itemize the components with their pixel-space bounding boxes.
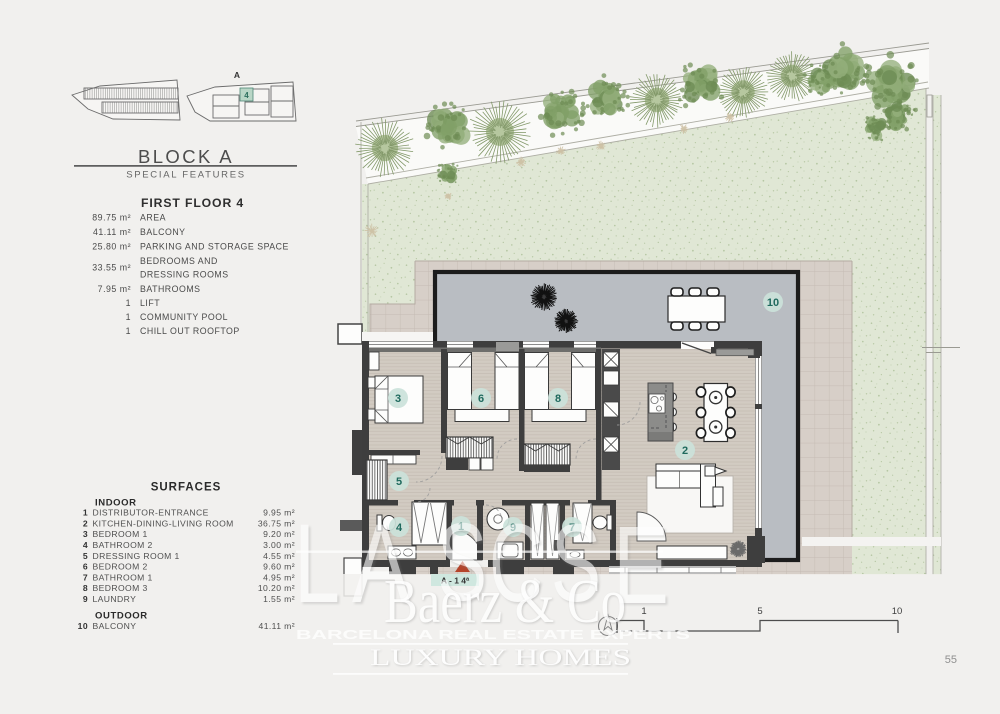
svg-text:BALCONY: BALCONY [93,621,137,631]
svg-text:BARCELONA REAL ESTATE EXPERTS: BARCELONA REAL ESTATE EXPERTS [296,627,691,642]
svg-text:BEDROOM 3: BEDROOM 3 [93,583,148,593]
svg-text:7: 7 [83,572,88,582]
svg-text:4: 4 [83,540,88,550]
svg-text:7.95 m²: 7.95 m² [98,284,131,294]
svg-text:2: 2 [682,445,688,457]
svg-text:CHILL OUT ROOFTOP: CHILL OUT ROOFTOP [140,326,240,336]
svg-text:1.55 m²: 1.55 m² [263,594,295,604]
svg-text:DRESSING ROOMS: DRESSING ROOMS [140,270,229,280]
svg-text:8: 8 [555,393,561,405]
svg-text:41.11 m²: 41.11 m² [93,227,131,237]
svg-text:LUXURY HOMES: LUXURY HOMES [370,645,631,670]
svg-text:8: 8 [83,583,88,593]
svg-text:1: 1 [83,508,88,518]
svg-text:KITCHEN-DINING-LIVING ROOM: KITCHEN-DINING-LIVING ROOM [93,518,234,528]
svg-text:BLOCK A: BLOCK A [138,146,234,167]
svg-text:55: 55 [945,654,957,666]
svg-text:DRESSING ROOM 1: DRESSING ROOM 1 [93,551,180,561]
svg-text:BEDROOMS AND: BEDROOMS AND [140,256,218,266]
svg-text:SURFACES: SURFACES [151,482,222,494]
svg-text:PARKING AND STORAGE SPACE: PARKING AND STORAGE SPACE [140,242,289,252]
svg-text:89.75 m²: 89.75 m² [92,213,131,223]
svg-text:1: 1 [126,326,131,336]
svg-text:4: 4 [244,91,249,100]
svg-text:3.00 m²: 3.00 m² [263,540,295,550]
svg-text:33.55 m²: 33.55 m² [92,263,131,273]
svg-text:25.80 m²: 25.80 m² [92,242,131,252]
svg-text:BEDROOM 2: BEDROOM 2 [93,562,148,572]
svg-text:DISTRIBUTOR-ENTRANCE: DISTRIBUTOR-ENTRANCE [93,508,209,518]
svg-text:BALCONY: BALCONY [140,227,186,237]
svg-text:36.75 m²: 36.75 m² [258,518,295,528]
svg-text:6: 6 [83,562,88,572]
svg-text:Baerz & Co: Baerz & Co [384,568,626,636]
svg-text:L: L [294,501,340,626]
svg-text:41.11 m²: 41.11 m² [259,621,295,631]
svg-text:5: 5 [396,476,402,488]
svg-text:5: 5 [83,551,88,561]
svg-text:10: 10 [767,297,779,309]
svg-text:LAUNDRY: LAUNDRY [93,594,137,604]
svg-text:5: 5 [757,606,762,617]
svg-text:FIRST FLOOR 4: FIRST FLOOR 4 [141,196,244,210]
svg-text:LIFT: LIFT [140,298,160,308]
svg-text:9: 9 [83,594,88,604]
svg-text:BATHROOM 1: BATHROOM 1 [93,572,153,582]
svg-text:SPECIAL FEATURES: SPECIAL FEATURES [126,170,246,181]
svg-text:6: 6 [478,393,484,405]
svg-text:A: A [234,70,240,80]
svg-text:4.95 m²: 4.95 m² [263,572,295,582]
svg-text:4.55 m²: 4.55 m² [263,551,295,561]
svg-text:COMMUNITY POOL: COMMUNITY POOL [140,312,228,322]
svg-text:9.95 m²: 9.95 m² [263,508,295,518]
svg-text:9.60 m²: 9.60 m² [263,562,295,572]
svg-text:3: 3 [83,529,88,539]
svg-text:1: 1 [126,312,131,322]
svg-text:BATHROOMS: BATHROOMS [140,284,201,294]
svg-text:2: 2 [83,518,88,528]
svg-text:9.20 m²: 9.20 m² [263,529,295,539]
svg-text:BATHROOM 2: BATHROOM 2 [93,540,153,550]
svg-text:BEDROOM 1: BEDROOM 1 [93,529,148,539]
svg-text:AREA: AREA [140,213,166,223]
svg-text:10.20 m²: 10.20 m² [258,583,295,593]
svg-text:1: 1 [126,298,131,308]
svg-text:10: 10 [892,606,903,617]
svg-text:3: 3 [395,393,401,405]
svg-text:10: 10 [78,621,88,631]
